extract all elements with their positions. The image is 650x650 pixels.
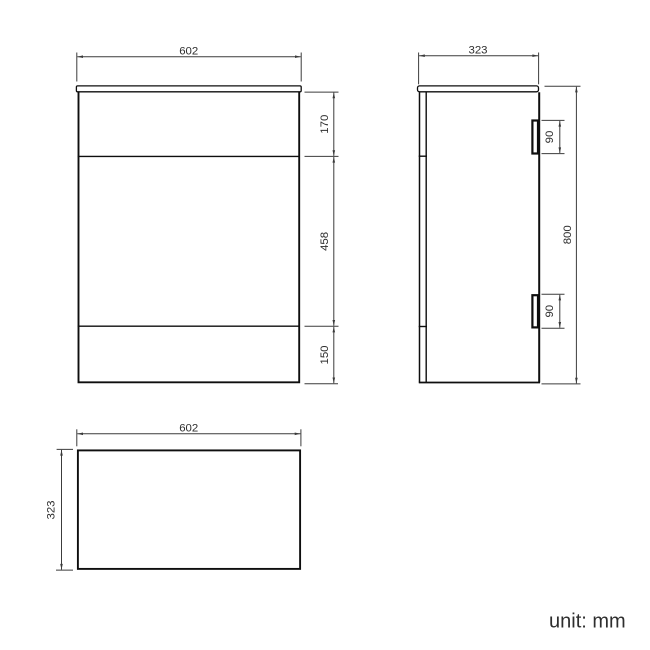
svg-text:602: 602	[179, 46, 198, 58]
svg-text:150: 150	[319, 345, 331, 364]
svg-text:unit: mm: unit: mm	[549, 611, 626, 633]
svg-text:323: 323	[468, 45, 487, 57]
svg-text:170: 170	[319, 115, 331, 134]
svg-text:323: 323	[45, 500, 57, 519]
svg-text:90: 90	[544, 305, 556, 318]
svg-text:602: 602	[179, 423, 198, 435]
svg-text:800: 800	[562, 225, 574, 244]
svg-text:90: 90	[544, 131, 556, 144]
svg-text:458: 458	[319, 232, 331, 251]
